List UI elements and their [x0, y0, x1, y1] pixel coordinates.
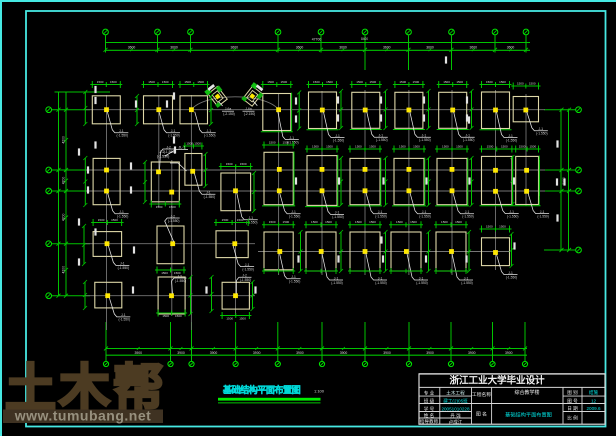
- svg-text:(-1.550): (-1.550): [416, 281, 428, 285]
- svg-text:1500: 1500: [175, 314, 182, 318]
- svg-text:1500: 1500: [355, 144, 362, 148]
- svg-text:建工(2)05班: 建工(2)05班: [443, 398, 468, 405]
- svg-text:J-2: J-2: [177, 274, 182, 278]
- svg-text:J-1: J-1: [508, 134, 513, 138]
- svg-text:J-1: J-1: [419, 276, 424, 280]
- svg-text:3900: 3900: [177, 351, 185, 355]
- svg-text:J-1: J-1: [422, 134, 427, 138]
- svg-text:J-1: J-1: [206, 191, 211, 195]
- svg-text:www.tumubang.net: www.tumubang.net: [14, 408, 152, 424]
- svg-text:2009.6: 2009.6: [586, 406, 600, 411]
- svg-text:1500: 1500: [186, 141, 193, 145]
- svg-text:1500: 1500: [456, 144, 463, 148]
- svg-text:(-1.550): (-1.550): [240, 278, 252, 282]
- svg-text:(-1.550): (-1.550): [376, 138, 388, 142]
- svg-text:J-1: J-1: [465, 210, 470, 214]
- svg-text:1500: 1500: [312, 144, 319, 148]
- svg-text:工程名称: 工程名称: [472, 391, 491, 398]
- svg-text:(-1.550): (-1.550): [375, 281, 387, 285]
- svg-text:4200: 4200: [61, 136, 65, 144]
- svg-text:J-2: J-2: [166, 145, 171, 149]
- svg-text:1500: 1500: [456, 80, 463, 84]
- svg-text:(-2.150): (-2.150): [244, 112, 256, 116]
- svg-text:3900: 3900: [340, 351, 348, 355]
- svg-text:8400: 8400: [361, 37, 368, 41]
- svg-text:1500: 1500: [399, 80, 406, 84]
- svg-text:3600: 3600: [230, 46, 238, 50]
- svg-text:1500: 1500: [499, 224, 506, 228]
- svg-text:综合教学楼: 综合教学楼: [514, 389, 539, 396]
- svg-text:卢成江: 卢成江: [449, 418, 463, 425]
- svg-text:1500: 1500: [110, 80, 117, 84]
- svg-text:J-1: J-1: [291, 210, 296, 214]
- svg-text:(-1.550): (-1.550): [204, 134, 216, 138]
- svg-text:1500: 1500: [184, 80, 191, 84]
- svg-text:J-1: J-1: [206, 129, 211, 133]
- svg-text:1500: 1500: [356, 80, 363, 84]
- svg-text:1500: 1500: [441, 220, 448, 224]
- svg-text:3900: 3900: [505, 351, 513, 355]
- svg-text:(-1.550): (-1.550): [204, 195, 216, 199]
- svg-text:J-1: J-1: [335, 211, 340, 215]
- svg-text:(-1.550): (-1.550): [331, 281, 343, 285]
- svg-text:(-1.550): (-1.550): [506, 275, 518, 279]
- svg-text:1500: 1500: [267, 80, 274, 84]
- svg-text:1500: 1500: [226, 162, 233, 166]
- svg-text:(-2.150): (-2.150): [223, 112, 235, 116]
- svg-text:J-1: J-1: [539, 127, 544, 131]
- svg-text:J-1: J-1: [508, 271, 513, 275]
- svg-text:J-1: J-1: [119, 210, 124, 214]
- svg-text:1500: 1500: [239, 317, 246, 321]
- svg-text:学 号: 学 号: [424, 405, 435, 412]
- svg-text:1500: 1500: [222, 218, 229, 222]
- svg-text:1500: 1500: [280, 80, 287, 84]
- svg-text:1500: 1500: [486, 80, 493, 84]
- svg-text:20051010228: 20051010228: [441, 406, 470, 411]
- svg-text:1500: 1500: [169, 205, 176, 209]
- svg-text:(-1.550): (-1.550): [118, 266, 130, 270]
- svg-text:(-1.550): (-1.550): [463, 138, 475, 142]
- svg-text:1500: 1500: [162, 80, 169, 84]
- svg-text:3600: 3600: [296, 46, 304, 50]
- svg-text:J-1: J-1: [464, 276, 469, 280]
- svg-text:(-1.550): (-1.550): [289, 280, 301, 284]
- svg-text:J-1: J-1: [120, 262, 125, 266]
- svg-text:J-2: J-2: [242, 274, 247, 278]
- svg-text:1500: 1500: [519, 144, 526, 148]
- svg-text:(-1.550): (-1.550): [332, 215, 344, 219]
- svg-text:图 别: 图 别: [567, 389, 578, 396]
- svg-text:3900: 3900: [134, 351, 142, 355]
- svg-text:1500: 1500: [311, 220, 318, 224]
- svg-text:1500: 1500: [396, 220, 403, 224]
- svg-text:1500: 1500: [326, 144, 333, 148]
- svg-text:1500: 1500: [237, 218, 244, 222]
- svg-text:(-1.550): (-1.550): [117, 215, 129, 219]
- svg-text:1500: 1500: [501, 144, 508, 148]
- svg-text:(-1.550): (-1.550): [536, 132, 548, 136]
- svg-text:3600: 3600: [507, 46, 515, 50]
- svg-text:1500: 1500: [413, 144, 420, 148]
- svg-text:J-1: J-1: [291, 275, 296, 279]
- svg-text:(-1.550): (-1.550): [537, 214, 549, 218]
- svg-text:1500: 1500: [148, 80, 155, 84]
- svg-text:班 级: 班 级: [424, 398, 435, 405]
- svg-text:1500: 1500: [240, 162, 247, 166]
- svg-text:1500: 1500: [443, 80, 450, 84]
- svg-text:1500: 1500: [313, 80, 320, 84]
- svg-text:3900: 3900: [383, 351, 391, 355]
- svg-text:1500: 1500: [194, 141, 201, 145]
- svg-text:3600: 3600: [339, 46, 347, 50]
- svg-text:1500: 1500: [399, 144, 406, 148]
- svg-text:1500: 1500: [517, 81, 524, 85]
- svg-text:(-1.550): (-1.550): [462, 215, 474, 219]
- svg-text:J-1: J-1: [248, 216, 253, 220]
- svg-text:1500: 1500: [98, 218, 105, 222]
- svg-text:1500: 1500: [455, 220, 462, 224]
- svg-text:J-1: J-1: [290, 136, 295, 140]
- svg-text:1500: 1500: [413, 80, 420, 84]
- svg-text:(-1.550): (-1.550): [119, 318, 131, 322]
- svg-text:1500: 1500: [442, 144, 449, 148]
- svg-text:3900: 3900: [468, 351, 476, 355]
- svg-text:(-1.550): (-1.550): [289, 215, 301, 219]
- svg-text:1500: 1500: [487, 144, 494, 148]
- svg-text:1500: 1500: [226, 317, 233, 321]
- svg-text:J-1: J-1: [422, 210, 427, 214]
- svg-text:专 业: 专 业: [424, 389, 435, 396]
- svg-text:1:100: 1:100: [314, 389, 325, 394]
- svg-text:土木工程: 土木工程: [446, 389, 465, 396]
- svg-text:1500: 1500: [325, 220, 332, 224]
- svg-text:1500: 1500: [326, 80, 333, 84]
- svg-text:1500: 1500: [369, 80, 376, 84]
- svg-text:1500: 1500: [97, 80, 104, 84]
- svg-text:1500: 1500: [369, 144, 376, 148]
- svg-text:1500: 1500: [162, 314, 169, 318]
- svg-text:姓 名: 姓 名: [424, 412, 434, 419]
- svg-text:J-6a: J-6a: [225, 107, 232, 111]
- svg-text:指导教师: 指导教师: [420, 418, 439, 425]
- svg-text:3900: 3900: [210, 351, 218, 355]
- svg-text:(-1.550): (-1.550): [333, 138, 345, 142]
- svg-text:47700: 47700: [312, 37, 322, 41]
- svg-text:1500: 1500: [283, 140, 290, 144]
- svg-text:J-1: J-1: [119, 129, 124, 133]
- svg-text:J-1: J-1: [245, 263, 250, 267]
- svg-text:J-1: J-1: [379, 134, 384, 138]
- svg-text:1500: 1500: [529, 144, 536, 148]
- svg-text:(-1.550): (-1.550): [242, 267, 254, 271]
- svg-text:(-1.550): (-1.550): [117, 134, 129, 138]
- svg-text:(-1.550): (-1.550): [507, 214, 519, 218]
- svg-text:3900: 3900: [296, 351, 304, 355]
- svg-text:J-1: J-1: [378, 210, 383, 214]
- svg-text:(-1.550): (-1.550): [168, 219, 180, 223]
- svg-text:4200: 4200: [61, 177, 65, 185]
- svg-text:J-1: J-1: [171, 129, 176, 133]
- svg-text:4200: 4200: [61, 266, 65, 274]
- svg-text:J-1: J-1: [121, 313, 126, 317]
- svg-text:1500: 1500: [111, 218, 118, 222]
- svg-text:(-1.550): (-1.550): [419, 215, 431, 219]
- svg-text:1500: 1500: [283, 220, 290, 224]
- svg-text:(-1.550): (-1.550): [175, 279, 187, 283]
- svg-text:1500: 1500: [369, 220, 376, 224]
- svg-text:J-1: J-1: [378, 276, 383, 280]
- svg-text:(-1.550): (-1.550): [506, 138, 518, 142]
- svg-text:J-6a: J-6a: [245, 107, 252, 111]
- svg-text:(-1.550): (-1.550): [419, 138, 431, 142]
- svg-text:1500: 1500: [161, 271, 168, 275]
- svg-text:1500: 1500: [197, 80, 204, 84]
- svg-text:(-1.550): (-1.550): [375, 215, 387, 219]
- svg-text:3600: 3600: [469, 46, 477, 50]
- svg-text:3900: 3900: [426, 351, 434, 355]
- svg-text:3600: 3600: [128, 46, 136, 50]
- svg-text:JL-1: JL-1: [179, 146, 186, 150]
- svg-text:图 名: 图 名: [476, 411, 487, 418]
- svg-text:1500: 1500: [486, 224, 493, 228]
- svg-text:J-1: J-1: [509, 210, 514, 214]
- svg-text:1500: 1500: [529, 81, 536, 85]
- svg-text:12: 12: [591, 398, 597, 403]
- svg-text:1500: 1500: [269, 140, 276, 144]
- svg-text:3600: 3600: [383, 46, 391, 50]
- svg-text:(-1.550): (-1.550): [157, 154, 170, 158]
- svg-text:J-1: J-1: [334, 276, 339, 280]
- svg-text:J-1: J-1: [540, 210, 545, 214]
- svg-text:结施: 结施: [589, 389, 599, 396]
- svg-text:比 例: 比 例: [567, 415, 578, 422]
- svg-text:4200: 4200: [61, 213, 65, 221]
- svg-text:3600: 3600: [426, 46, 434, 50]
- svg-text:1500: 1500: [355, 220, 362, 224]
- svg-text:1500: 1500: [410, 220, 417, 224]
- svg-text:J-1: J-1: [335, 134, 340, 138]
- svg-text:J-1: J-1: [465, 134, 470, 138]
- svg-text:1500: 1500: [499, 80, 506, 84]
- svg-text:3600: 3600: [170, 46, 178, 50]
- svg-text:1500: 1500: [269, 220, 276, 224]
- svg-text:1500: 1500: [156, 205, 163, 209]
- svg-text:基础结构平面布置图: 基础结构平面布置图: [222, 384, 301, 395]
- svg-text:J-2: J-2: [170, 214, 175, 218]
- svg-text:基础结构平面布置图: 基础结构平面布置图: [505, 410, 552, 418]
- svg-text:3900: 3900: [253, 351, 261, 355]
- svg-text:(-1.550): (-1.550): [461, 281, 473, 285]
- svg-text:浙江工业大学毕业设计: 浙江工业大学毕业设计: [450, 375, 545, 387]
